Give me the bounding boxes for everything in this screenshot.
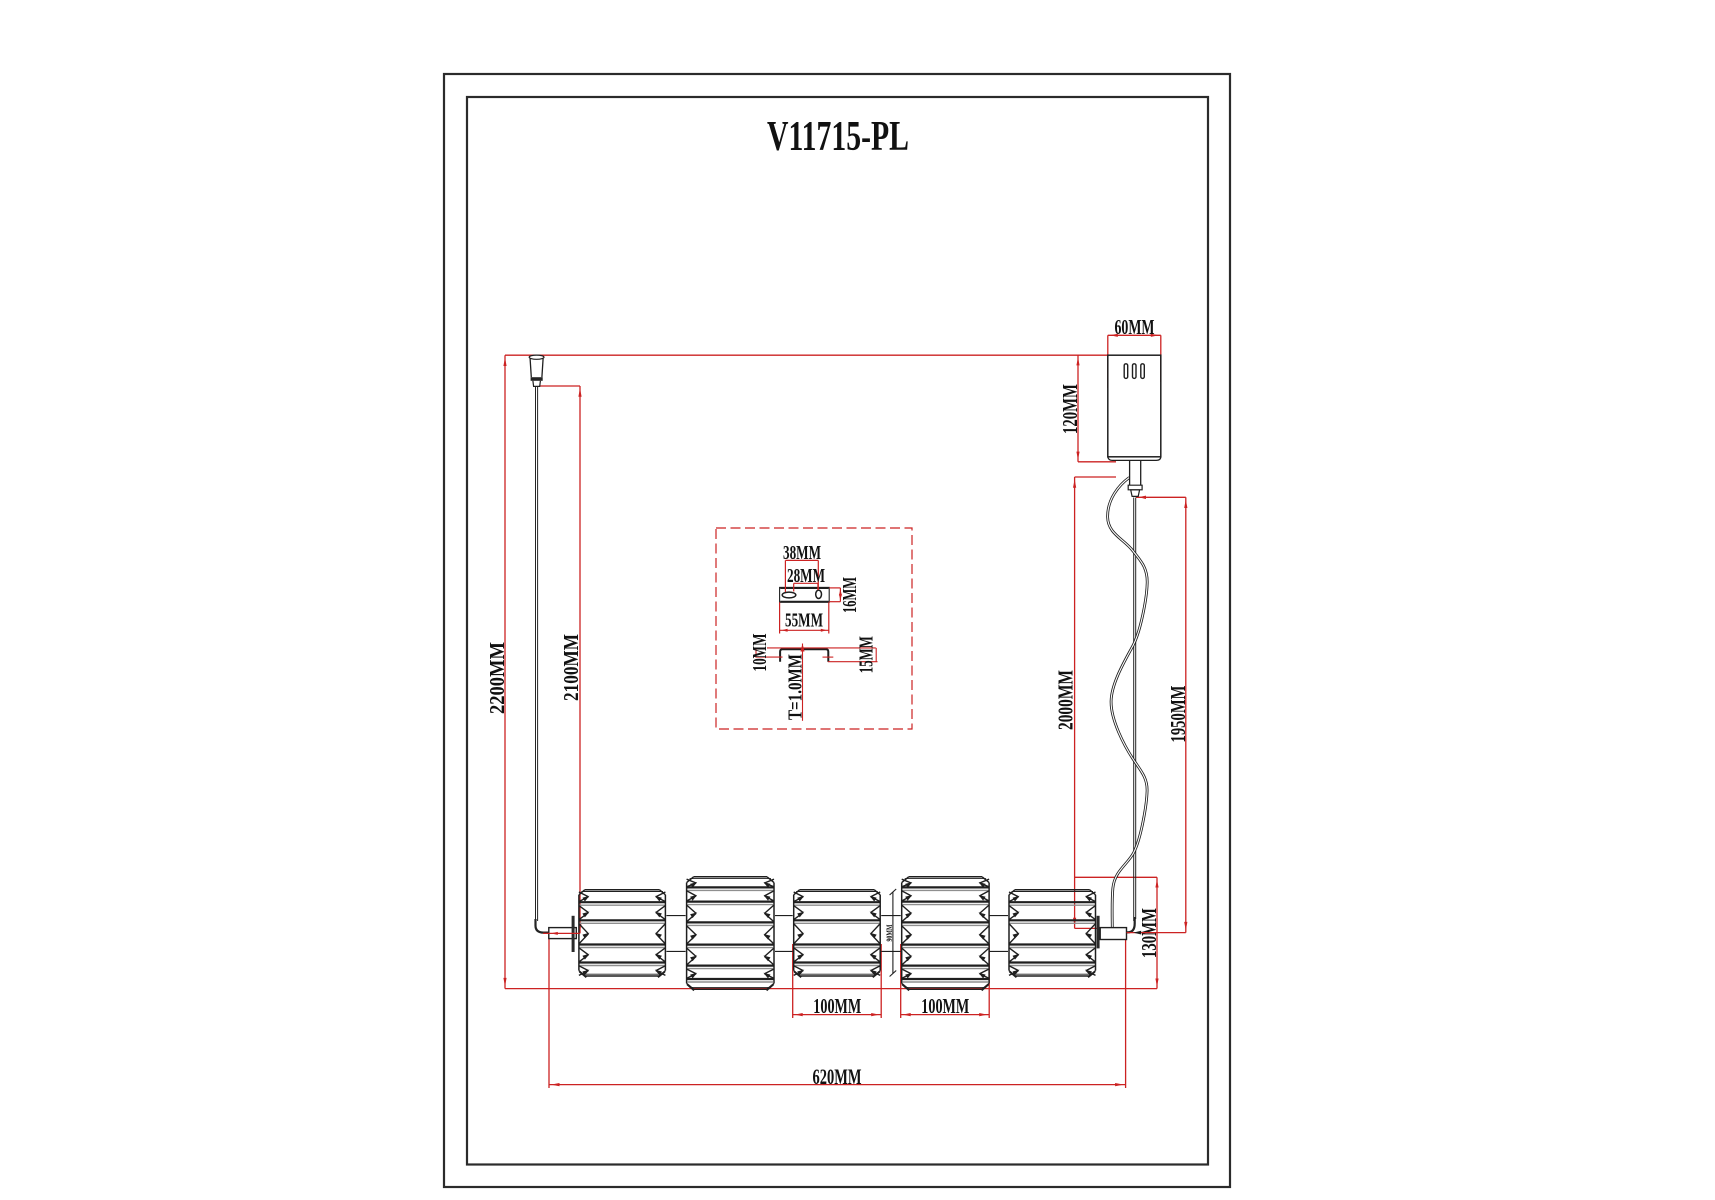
svg-text:100MM: 100MM — [813, 994, 861, 1018]
svg-text:10MM: 10MM — [749, 633, 771, 671]
svg-text:16MM: 16MM — [839, 577, 861, 613]
svg-text:28MM: 28MM — [787, 565, 825, 587]
svg-text:38MM: 38MM — [783, 542, 821, 564]
svg-text:120MM: 120MM — [1058, 384, 1082, 434]
svg-text:100MM: 100MM — [921, 994, 969, 1018]
svg-text:T=1.0MM: T=1.0MM — [784, 654, 806, 720]
svg-text:55MM: 55MM — [785, 609, 823, 631]
svg-text:2000MM: 2000MM — [1053, 670, 1077, 730]
svg-text:90MM: 90MM — [885, 924, 894, 941]
svg-text:620MM: 620MM — [813, 1064, 862, 1089]
svg-text:V11715-PL: V11715-PL — [767, 114, 909, 160]
svg-text:60MM: 60MM — [1115, 315, 1155, 339]
svg-text:2100MM: 2100MM — [559, 634, 583, 701]
svg-text:15MM: 15MM — [855, 636, 877, 673]
svg-text:2200MM: 2200MM — [485, 642, 509, 714]
svg-text:1950MM: 1950MM — [1166, 685, 1190, 742]
